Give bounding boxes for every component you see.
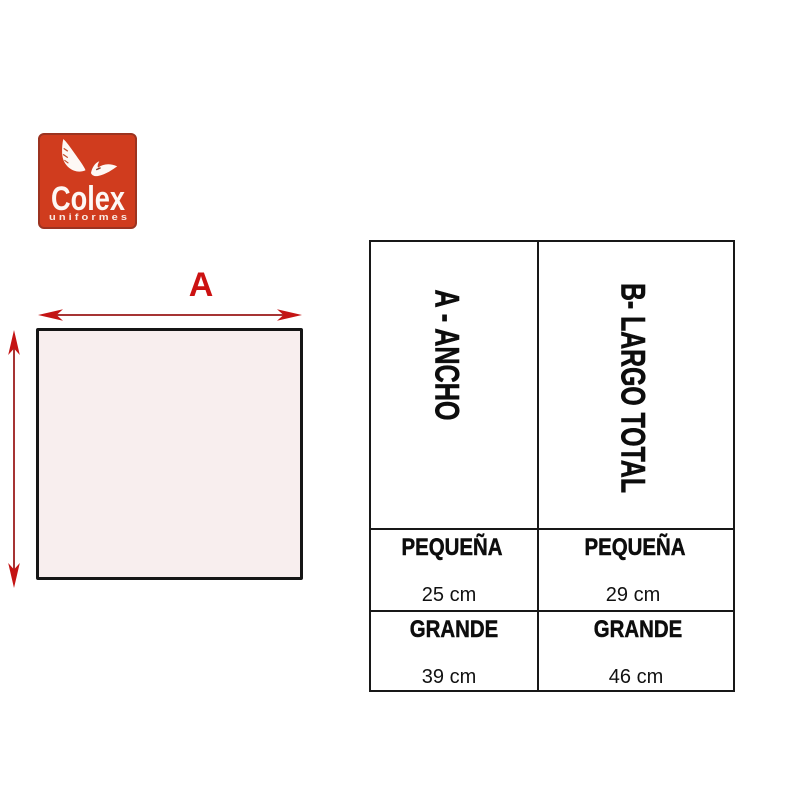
svg-text:u n i f o r m e s: u n i f o r m e s [49,212,127,222]
